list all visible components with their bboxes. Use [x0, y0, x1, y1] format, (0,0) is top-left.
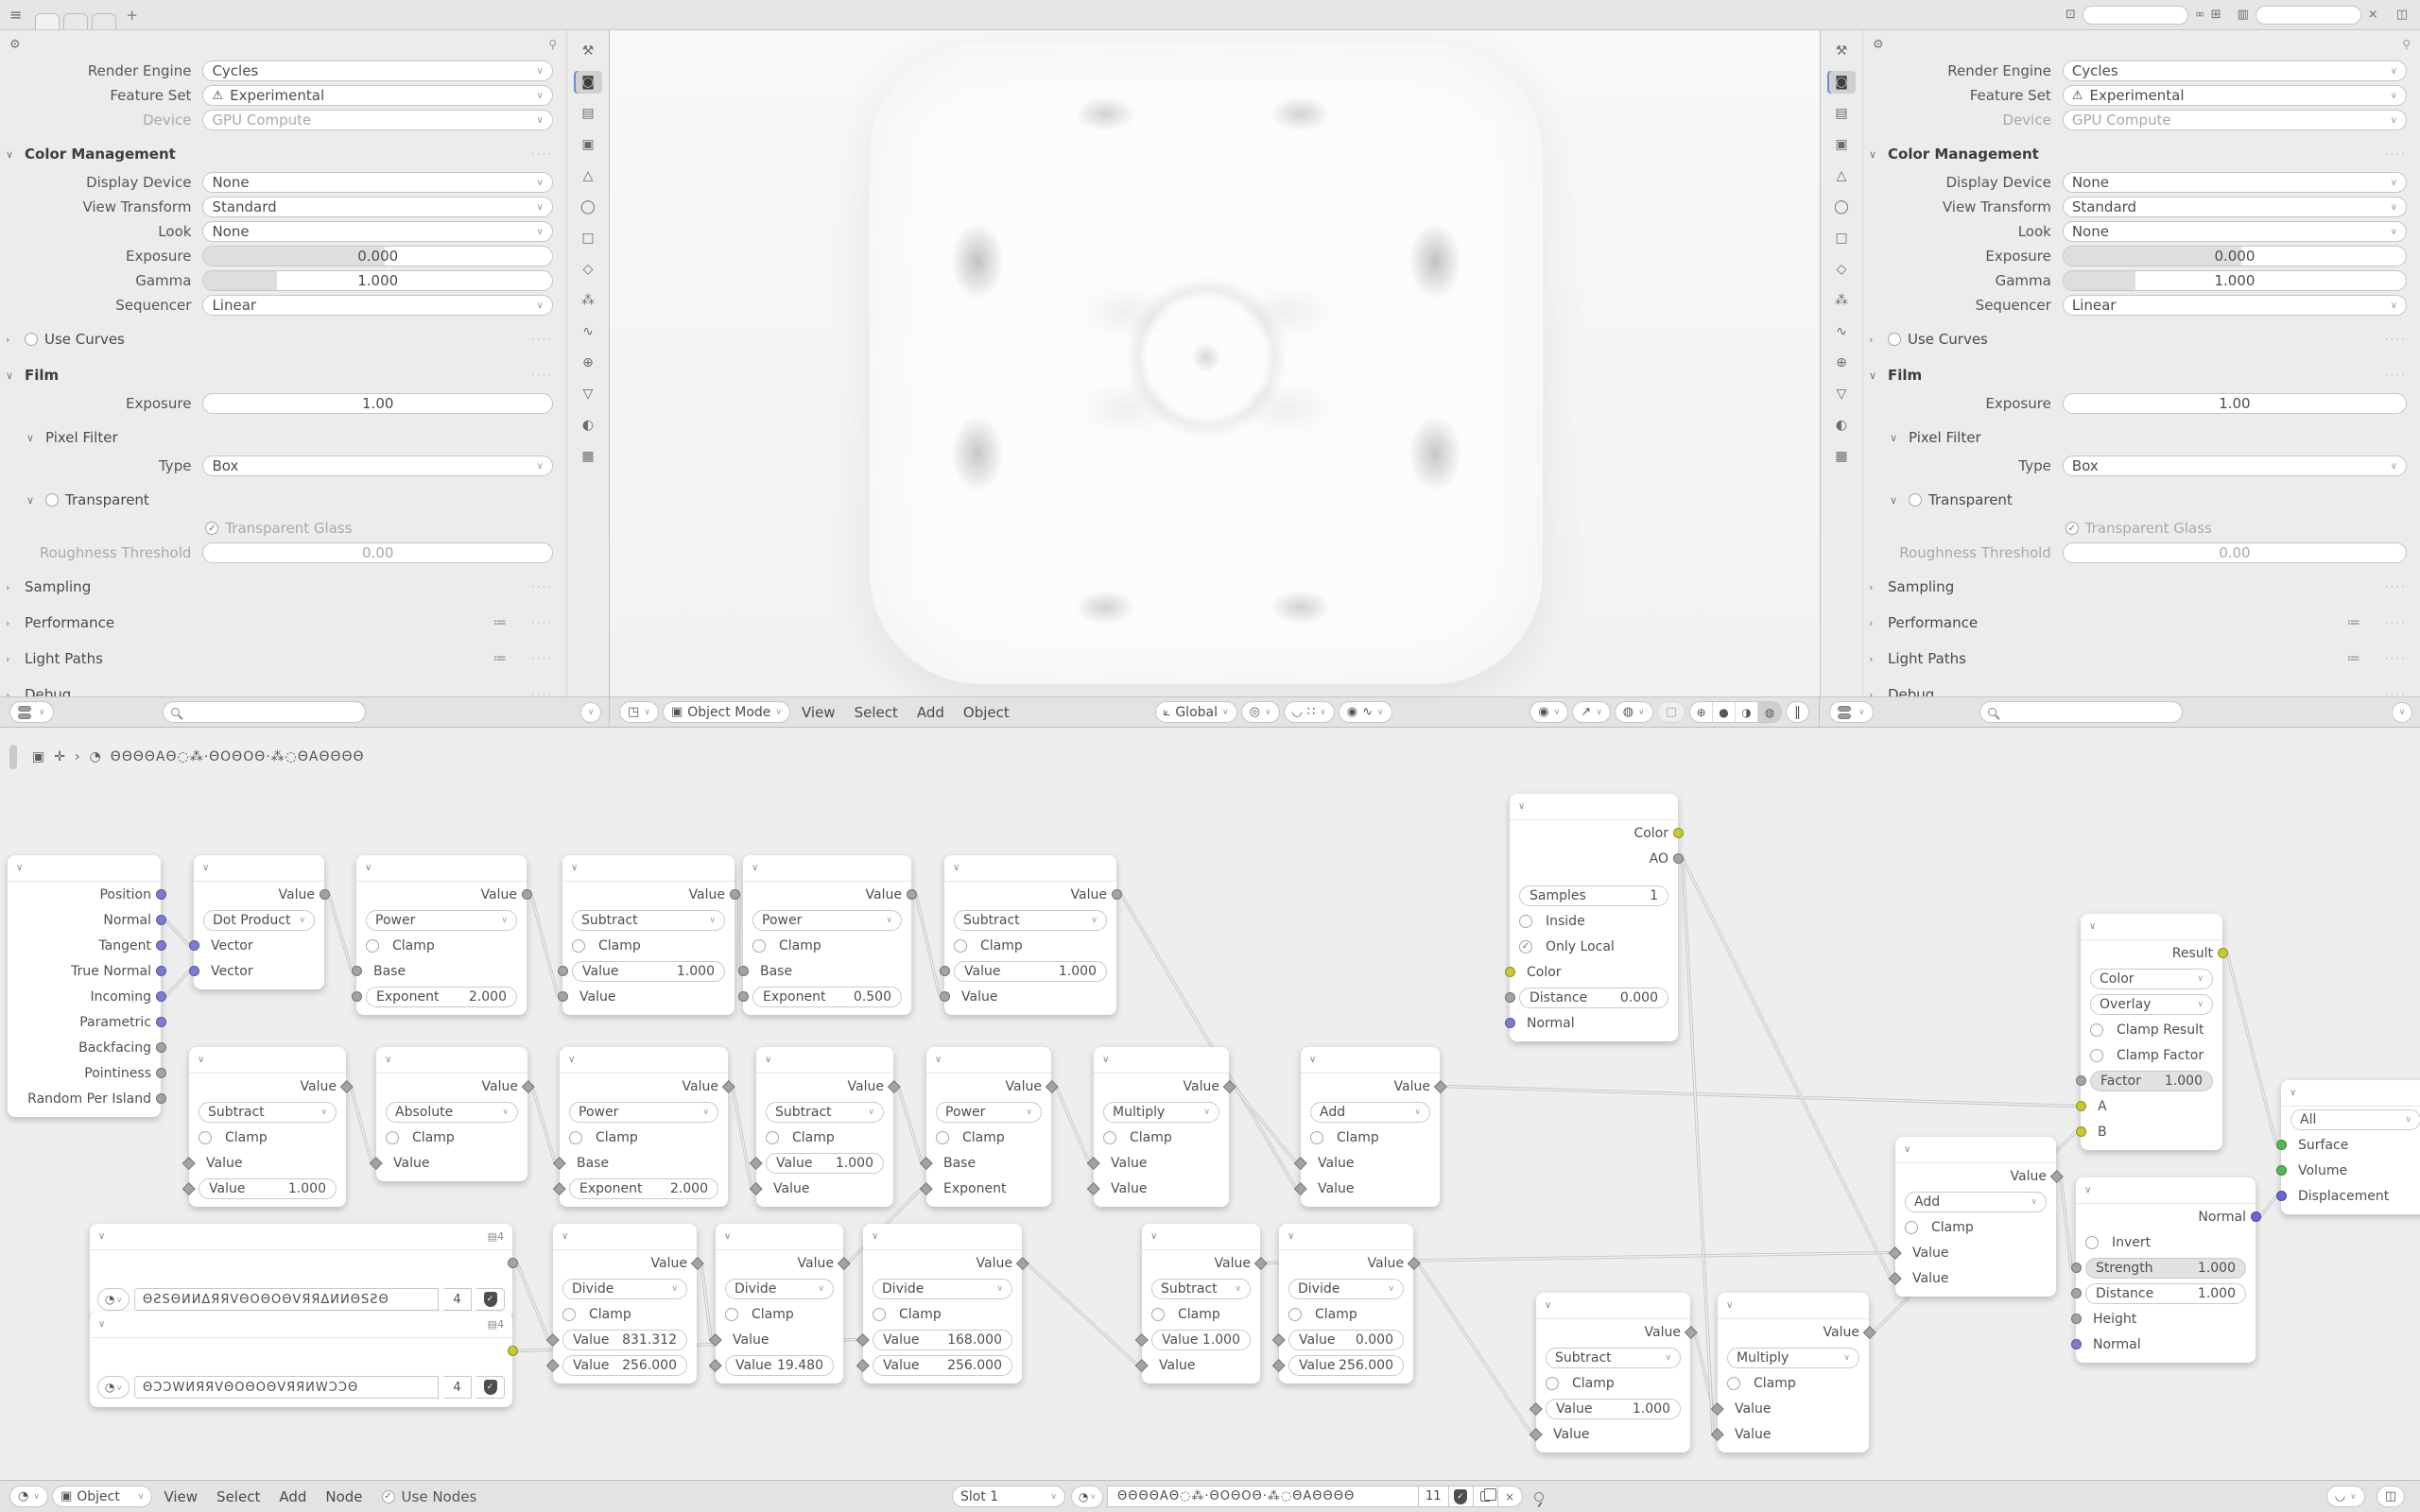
checkbox-clamp[interactable]: Clamp [725, 1307, 794, 1322]
subtract-operation-dropdown[interactable]: Subtract∨ [1546, 1348, 1681, 1368]
checkbox-clamp[interactable]: Clamp [386, 1130, 455, 1145]
fake-user-shield-button[interactable] [476, 1376, 505, 1399]
exposure-field[interactable]: 1.00 [202, 393, 553, 414]
tab-object-data[interactable]: ▽ [1827, 383, 1856, 405]
checkbox-clamp[interactable]: Clamp [1310, 1130, 1379, 1145]
checkbox-transparent-glass[interactable] [205, 522, 218, 535]
menu-view[interactable]: View [792, 704, 845, 721]
device-dropdown[interactable]: GPU Compute∨ [202, 110, 553, 130]
tab-particles[interactable]: ⁂ [1827, 289, 1856, 312]
transform-orientation-dropdown[interactable]: ⟀Global∨ [1155, 701, 1237, 723]
datablock-name-field[interactable]: ΘƆƆWИЯЯVΘOΘOΘVЯЯИWƆƆΘ [134, 1376, 439, 1399]
node-t1[interactable]: ∨▤4◔∨ΘƧSΘИИΔЯЯVΘOΘOΘVЯЯΔИИΘSƧΘ4 [90, 1224, 512, 1319]
node-header[interactable]: ∨ [560, 1047, 728, 1074]
input-socket-vector[interactable] [189, 966, 199, 976]
section-transparent[interactable]: ∨Transparent [26, 488, 553, 512]
node-header[interactable]: ∨ [716, 1224, 843, 1250]
collapse-caret-icon[interactable]: ∨ [765, 1055, 771, 1065]
collapse-caret-icon[interactable]: ∨ [2089, 921, 2096, 932]
sequencer-dropdown[interactable]: Linear∨ [202, 295, 553, 316]
node-header[interactable]: ∨ [1301, 1047, 1440, 1074]
node-m5[interactable]: ∨ValuePower∨ClampBaseExponent [926, 1047, 1051, 1207]
node-t2[interactable]: ∨▤4◔∨ΘƆƆWИЯЯVΘOΘOΘVЯЯИWƆƆΘ4 [90, 1312, 512, 1407]
section-color-management[interactable]: ∨Color Management···· [1869, 142, 2407, 166]
menu-select[interactable]: Select [207, 1488, 269, 1505]
tab-world[interactable]: ◯ [574, 196, 602, 218]
snap-controls[interactable]: ◡∷∨ [1284, 701, 1335, 723]
subtract-operation-dropdown[interactable]: Subtract∨ [199, 1102, 337, 1123]
menu-add[interactable]: Add [269, 1488, 316, 1505]
checkbox-clamp[interactable]: Clamp [1288, 1307, 1357, 1322]
section-debug[interactable]: ›Debug···· [1869, 682, 2407, 696]
shading-wireframe-button[interactable]: ⊕ [1690, 702, 1713, 722]
output-socket-value[interactable] [522, 889, 532, 900]
node-ao[interactable]: ∨ColorAOSamples1InsideOnly LocalColorDis… [1510, 794, 1678, 1041]
checkbox-clamp-result[interactable]: Clamp Result [2090, 1022, 2204, 1038]
properties-editor-icon[interactable]: ⚙ [9, 38, 21, 52]
node-header[interactable]: ∨ [1510, 794, 1678, 820]
input-socket-a[interactable] [2076, 1101, 2086, 1111]
overlays-dropdown[interactable]: ◍∨ [1615, 701, 1653, 723]
datablock-user-count[interactable]: 4 [443, 1288, 472, 1311]
xray-toggle[interactable]: ▢ [1657, 701, 1685, 723]
checkbox-clamp[interactable]: Clamp [199, 1130, 268, 1145]
tab-view-layer[interactable]: ▣ [1827, 133, 1856, 156]
exposure-slider[interactable]: 0.000 [2063, 246, 2407, 266]
value-value-field[interactable]: Value256.000 [562, 1355, 687, 1376]
node-header[interactable]: ∨ [926, 1047, 1051, 1074]
fake-user-shield-button[interactable] [476, 1288, 505, 1311]
collapse-caret-icon[interactable]: ∨ [562, 1231, 568, 1242]
input-socket-normal[interactable] [1505, 1018, 1515, 1028]
node-d1[interactable]: ∨ValueDivide∨ClampValue831.312Value256.0… [553, 1224, 697, 1383]
feature-set-dropdown[interactable]: ⚠Experimental∨ [2063, 85, 2407, 106]
distance-value-field[interactable]: Distance0.000 [1519, 988, 1668, 1008]
node-smul[interactable]: ∨ValueMultiply∨ClampValueValue [1718, 1293, 1869, 1452]
output-socket-normal[interactable] [156, 915, 166, 925]
display-device-dropdown[interactable]: None∨ [202, 172, 553, 193]
node-sub2[interactable]: ∨ValueSubtract∨ClampValue1.000Value [944, 855, 1116, 1015]
collapse-caret-icon[interactable]: ∨ [198, 1055, 204, 1065]
tab-world[interactable]: ◯ [1827, 196, 1856, 218]
value-value-field[interactable]: Value19.480 [725, 1355, 834, 1376]
checkbox-clamp[interactable]: Clamp [562, 1307, 631, 1322]
shading-solid-button[interactable]: ● [1713, 702, 1736, 722]
tab-texture[interactable]: ▦ [574, 445, 602, 468]
filter-toggle-button[interactable]: ∨ [1829, 701, 1874, 723]
exponent-value-field[interactable]: Exponent2.000 [569, 1178, 718, 1199]
add-operation-dropdown[interactable]: Add∨ [1310, 1102, 1430, 1123]
device-dropdown[interactable]: GPU Compute∨ [2063, 110, 2407, 130]
value-value-field[interactable]: Value1.000 [1151, 1330, 1251, 1350]
properties-editor-icon[interactable]: ⚙ [1873, 38, 1884, 52]
input-socket-base[interactable] [738, 966, 749, 976]
node-m3[interactable]: ∨ValuePower∨ClampBaseExponent2.000 [560, 1047, 728, 1207]
link-icon[interactable]: ∞ [2195, 8, 2205, 22]
collapse-caret-icon[interactable]: ∨ [935, 1055, 942, 1065]
checkbox-clamp[interactable]: Clamp [366, 938, 435, 954]
input-socket-color[interactable] [1505, 967, 1515, 977]
tab-texture[interactable]: ▦ [1827, 445, 1856, 468]
display-device-dropdown[interactable]: None∨ [2063, 172, 2407, 193]
checkbox-clamp[interactable]: Clamp [1727, 1376, 1796, 1391]
roughness-threshold-field[interactable]: 0.00 [2063, 542, 2407, 563]
collapse-caret-icon[interactable]: ∨ [202, 863, 209, 873]
input-socket-displacement[interactable] [2276, 1191, 2287, 1201]
input-socket-height[interactable] [2071, 1314, 2082, 1324]
node-header[interactable]: ∨ [1094, 1047, 1229, 1074]
input-socket-value[interactable] [558, 991, 568, 1002]
output-socket-value[interactable] [508, 1346, 518, 1356]
input-socket-distance[interactable] [1505, 992, 1515, 1003]
collapse-caret-icon[interactable]: ∨ [1288, 1231, 1294, 1242]
output-socket-value[interactable] [508, 1258, 518, 1268]
workspace-tab[interactable] [63, 13, 88, 29]
preset-list-icon[interactable]: ≔ [2347, 615, 2360, 630]
collapse-caret-icon[interactable]: ∨ [1904, 1144, 1910, 1155]
node-m4[interactable]: ∨ValueSubtract∨ClampValue1.000Value [756, 1047, 893, 1207]
render-engine-dropdown[interactable]: Cycles∨ [2063, 60, 2407, 81]
node-header[interactable]: ∨ [2081, 914, 2222, 940]
input-socket-exponent[interactable] [738, 991, 749, 1002]
preset-list-icon[interactable]: ≔ [493, 615, 507, 630]
tab-modifiers[interactable]: ◇ [1827, 258, 1856, 281]
multiply-operation-dropdown[interactable]: Multiply∨ [1103, 1102, 1219, 1123]
node-bump[interactable]: ∨NormalInvertStrength1.000Distance1.000H… [2076, 1177, 2256, 1363]
multiply-operation-dropdown[interactable]: Multiply∨ [1727, 1348, 1859, 1368]
section-use-curves[interactable]: ›Use Curves···· [6, 327, 553, 352]
input-socket-value[interactable] [940, 966, 950, 976]
subtract-operation-dropdown[interactable]: Subtract∨ [1151, 1279, 1251, 1299]
tab-tool[interactable]: ⚒ [1827, 40, 1856, 62]
pivot-point-dropdown[interactable]: ◎∨ [1241, 701, 1280, 723]
collapse-caret-icon[interactable]: ∨ [385, 1055, 391, 1065]
divide-operation-dropdown[interactable]: Divide∨ [562, 1279, 687, 1299]
feature-set-dropdown[interactable]: ⚠Experimental∨ [202, 85, 553, 106]
scrollbar[interactable] [9, 745, 17, 769]
collapse-caret-icon[interactable]: ∨ [1726, 1300, 1733, 1311]
input-socket-surface[interactable] [2276, 1140, 2287, 1150]
node-m6[interactable]: ∨ValueMultiply∨ClampValueValue [1094, 1047, 1229, 1207]
add-operation-dropdown[interactable]: Add∨ [1905, 1192, 2047, 1212]
node-m2[interactable]: ∨ValueAbsolute∨ClampValue [376, 1047, 527, 1181]
exposure-field[interactable]: 1.00 [2063, 393, 2407, 414]
tab-material[interactable]: ◐ [1827, 414, 1856, 437]
node-header[interactable]: ∨ [756, 1047, 893, 1074]
node-mix[interactable]: ∨ResultColor∨Overlay∨Clamp ResultClamp F… [2081, 914, 2222, 1150]
use-nodes-checkbox[interactable] [382, 1490, 395, 1503]
menu-view[interactable]: View [154, 1488, 207, 1505]
checkbox-only-local[interactable]: Only Local [1519, 939, 1615, 954]
collapse-caret-icon[interactable]: ∨ [752, 863, 758, 873]
datablock-name-field[interactable]: ΘƧSΘИИΔЯЯVΘOΘOΘVЯЯΔИИΘSƧΘ [134, 1288, 439, 1311]
checkbox-transparent[interactable] [45, 493, 59, 507]
node-header[interactable]: ∨ [2281, 1080, 2420, 1107]
node-header[interactable]: ∨ [863, 1224, 1022, 1250]
collapse-caret-icon[interactable]: ∨ [1518, 801, 1525, 812]
tab-object[interactable]: □ [574, 227, 602, 249]
divide-operation-dropdown[interactable]: Divide∨ [1288, 1279, 1404, 1299]
tab-view-layer[interactable]: ▣ [574, 133, 602, 156]
view-transform-dropdown[interactable]: Standard∨ [202, 197, 553, 217]
tab-constraints[interactable]: ⊕ [1827, 352, 1856, 374]
distance-value-field[interactable]: Distance1.000 [2085, 1283, 2246, 1304]
input-socket-vector[interactable] [189, 940, 199, 951]
checkbox-inside[interactable]: Inside [1519, 914, 1585, 929]
node-d3[interactable]: ∨ValueDivide∨ClampValue168.000Value256.0… [863, 1224, 1022, 1383]
tab-tool[interactable]: ⚒ [574, 40, 602, 62]
checkbox-clamp-factor[interactable]: Clamp Factor [2090, 1048, 2204, 1063]
collapse-caret-icon[interactable]: ∨ [1309, 1055, 1316, 1065]
samples-value-field[interactable]: Samples1 [1519, 885, 1668, 906]
node-header[interactable]: ∨ [562, 855, 735, 882]
node-header[interactable]: ∨ [743, 855, 911, 882]
input-socket-value[interactable] [558, 966, 568, 976]
node-header[interactable]: ∨ [1718, 1293, 1869, 1319]
material-user-count[interactable]: 11 [1419, 1486, 1449, 1507]
node-sub1[interactable]: ∨ValueSubtract∨ClampValue1.000Value [562, 855, 735, 1015]
remove-view-layer-icon[interactable]: × [2368, 8, 2378, 22]
output-socket-tangent[interactable] [156, 940, 166, 951]
tab-render[interactable]: ◙ [1827, 71, 1856, 94]
node-header[interactable]: ∨ [376, 1047, 527, 1074]
collapse-caret-icon[interactable]: ∨ [2290, 1088, 2296, 1098]
exposure-slider[interactable]: 0.000 [202, 246, 553, 266]
input-socket-base[interactable] [352, 966, 362, 976]
collapse-caret-icon[interactable]: ∨ [16, 863, 23, 873]
gamma-slider[interactable]: 1.000 [202, 270, 553, 291]
look-dropdown[interactable]: None∨ [2063, 221, 2407, 242]
overlay-operation-dropdown[interactable]: Overlay∨ [2090, 994, 2213, 1015]
checkbox-clamp[interactable]: Clamp [936, 1130, 1005, 1145]
options-dropdown[interactable]: ∨ [2392, 702, 2412, 723]
value-value-field[interactable]: Value256.000 [1288, 1355, 1404, 1376]
gizmos-dropdown[interactable]: ↗∨ [1572, 701, 1611, 723]
factor-value-field[interactable]: Factor1.000 [2090, 1071, 2213, 1091]
editor-type-button[interactable]: ◳∨ [619, 701, 659, 723]
render-display-icon[interactable]: ◫ [2396, 8, 2408, 22]
output-socket-backfacing[interactable] [156, 1042, 166, 1053]
divide-operation-dropdown[interactable]: Divide∨ [873, 1279, 1012, 1299]
output-socket-random-per-island[interactable] [156, 1093, 166, 1104]
checkbox-clamp[interactable]: Clamp [954, 938, 1023, 954]
sequencer-dropdown[interactable]: Linear∨ [2063, 295, 2407, 316]
checkbox-clamp[interactable]: Clamp [572, 938, 641, 954]
section-performance[interactable]: ›Performance≔···· [6, 610, 553, 635]
section-pixel-filter[interactable]: ∨Pixel Filter [1890, 425, 2407, 450]
node-pow2[interactable]: ∨ValuePower∨ClampBaseExponent0.500 [743, 855, 911, 1015]
collapse-caret-icon[interactable]: ∨ [2084, 1185, 2091, 1195]
value-value-field[interactable]: Value1.000 [766, 1153, 884, 1174]
mode-dropdown[interactable]: ▣Object Mode∨ [663, 701, 790, 723]
input-socket-exponent[interactable] [352, 991, 362, 1002]
tab-material[interactable]: ◐ [574, 414, 602, 437]
tab-object[interactable]: □ [1827, 227, 1856, 249]
tab-constraints[interactable]: ⊕ [574, 352, 602, 374]
checkbox-clamp[interactable]: Clamp [873, 1307, 942, 1322]
node-m7[interactable]: ∨ValueAdd∨ClampValueValue [1301, 1047, 1440, 1207]
collapse-caret-icon[interactable]: ∨ [1102, 1055, 1109, 1065]
node-header[interactable]: ∨ [356, 855, 527, 882]
fake-user-shield-button[interactable] [1449, 1486, 1474, 1507]
checkbox-transparent[interactable] [1909, 493, 1922, 507]
visibility-dropdown[interactable]: ◉∨ [1530, 701, 1568, 723]
power-operation-dropdown[interactable]: Power∨ [936, 1102, 1042, 1123]
workspace-tab[interactable] [92, 13, 116, 29]
output-socket-value[interactable] [1112, 889, 1122, 900]
value-value-field[interactable]: Value168.000 [873, 1330, 1012, 1350]
collapse-caret-icon[interactable]: ∨ [98, 1231, 105, 1242]
viewport-3d[interactable] [610, 30, 1820, 696]
output-socket-true-normal[interactable] [156, 966, 166, 976]
checkbox-clamp[interactable]: Clamp [766, 1130, 835, 1145]
exponent-value-field[interactable]: Exponent2.000 [366, 987, 517, 1007]
material-browse-dropdown[interactable]: ◔∨ [1071, 1486, 1103, 1508]
node-header[interactable]: ∨ [8, 855, 161, 882]
output-socket-position[interactable] [156, 889, 166, 900]
material-name-field[interactable]: ΘΘΘΘAΘ◌⁂·ΘOΘOΘ·⁂◌ΘAΘΘΘΘ [1107, 1486, 1419, 1507]
section-sampling[interactable]: ›Sampling···· [1869, 575, 2407, 599]
output-socket-incoming[interactable] [156, 991, 166, 1002]
pin-icon[interactable]: ⚲ [548, 38, 557, 51]
menu-node[interactable]: Node [316, 1488, 372, 1505]
copy-material-button[interactable] [1474, 1486, 1498, 1507]
node-header[interactable]: ∨▤4 [90, 1224, 512, 1250]
node-header[interactable]: ∨ [1536, 1293, 1690, 1319]
subtract-operation-dropdown[interactable]: Subtract∨ [766, 1102, 884, 1123]
input-socket-normal[interactable] [2071, 1339, 2082, 1349]
section-light-paths[interactable]: ›Light Paths≔···· [6, 646, 553, 671]
node-header[interactable]: ∨ [1142, 1224, 1260, 1250]
node-dot[interactable]: ∨ValueDot Product∨VectorVector [194, 855, 324, 989]
shading-material-button[interactable]: ◑ [1736, 702, 1758, 722]
render-engine-dropdown[interactable]: Cycles∨ [202, 60, 553, 81]
power-operation-dropdown[interactable]: Power∨ [752, 910, 902, 931]
editor-type-button[interactable]: ◔∨ [9, 1486, 48, 1507]
node-ssub[interactable]: ∨ValueSubtract∨ClampValue1.000Value [1536, 1293, 1690, 1452]
checkbox-clamp[interactable]: Clamp [1103, 1130, 1172, 1145]
node-header[interactable]: ∨ [944, 855, 1116, 882]
workspace-tab[interactable] [35, 13, 60, 29]
unlink-material-button[interactable]: × [1498, 1486, 1523, 1507]
node-m1[interactable]: ∨ValueSubtract∨ClampValueValue1.000 [189, 1047, 346, 1207]
value-value-field[interactable]: Value1.000 [572, 961, 725, 982]
look-dropdown[interactable]: None∨ [202, 221, 553, 242]
node-header[interactable]: ∨ [2076, 1177, 2256, 1204]
section-performance[interactable]: ›Performance≔···· [1869, 610, 2407, 635]
output-socket-normal[interactable] [2251, 1211, 2261, 1222]
input-socket-volume[interactable] [2276, 1165, 2287, 1176]
section-use-curves[interactable]: ›Use Curves···· [1869, 327, 2407, 352]
node-header[interactable]: ∨ [1895, 1137, 2056, 1163]
snap-controls[interactable]: ◡∨ [2326, 1486, 2365, 1507]
all-operation-dropdown[interactable]: All∨ [2290, 1109, 2420, 1130]
app-menu-icon[interactable]: ≡ [9, 6, 22, 24]
input-socket-value[interactable] [940, 991, 950, 1002]
shader-type-dropdown[interactable]: ▣Object∨ [52, 1486, 153, 1507]
checkbox-clamp[interactable]: Clamp [1151, 1307, 1220, 1322]
collapse-caret-icon[interactable]: ∨ [98, 1319, 105, 1330]
pin-icon[interactable]: ⚲ [2402, 38, 2411, 51]
dot-product-operation-dropdown[interactable]: Dot Product∨ [203, 910, 315, 931]
section-pixel-filter[interactable]: ∨Pixel Filter [26, 425, 553, 450]
power-operation-dropdown[interactable]: Power∨ [366, 910, 517, 931]
datablock-user-count[interactable]: 4 [443, 1376, 472, 1399]
output-socket-color[interactable] [1673, 828, 1684, 838]
collapse-caret-icon[interactable]: ∨ [568, 1055, 575, 1065]
value-value-field[interactable]: Value1.000 [954, 961, 1107, 982]
collapse-caret-icon[interactable]: ∨ [365, 863, 372, 873]
material-slot-dropdown[interactable]: Slot 1∨ [952, 1486, 1065, 1507]
node-header[interactable]: ∨▤4 [90, 1312, 512, 1338]
view-transform-dropdown[interactable]: Standard∨ [2063, 197, 2407, 217]
section-transparent[interactable]: ∨Transparent [1890, 488, 2407, 512]
tab-physics[interactable]: ∿ [1827, 320, 1856, 343]
output-socket-pointiness[interactable] [156, 1068, 166, 1078]
proportional-edit-controls[interactable]: ◉∿∨ [1339, 701, 1392, 723]
search-input[interactable] [1979, 701, 2183, 723]
node-d2[interactable]: ∨ValueDivide∨ClampValueValue19.480 [716, 1224, 843, 1383]
section-film[interactable]: ∨Film···· [6, 363, 553, 387]
color-operation-dropdown[interactable]: Color∨ [2090, 969, 2213, 989]
datablock-browse-dropdown[interactable]: ◔∨ [97, 1288, 130, 1311]
input-socket-distance[interactable] [2071, 1288, 2082, 1298]
datablock-browse-dropdown[interactable]: ◔∨ [97, 1376, 130, 1399]
value-value-field[interactable]: Value0.000 [1288, 1330, 1404, 1350]
subtract-operation-dropdown[interactable]: Subtract∨ [572, 910, 725, 931]
gamma-slider[interactable]: 1.000 [2063, 270, 2407, 291]
collapse-caret-icon[interactable]: ∨ [872, 1231, 878, 1242]
node-header[interactable]: ∨ [194, 855, 324, 882]
node-outn[interactable]: ∨All∨SurfaceVolumeDisplacement [2281, 1080, 2420, 1214]
node-pow1[interactable]: ∨ValuePower∨ClampBaseExponent2.000 [356, 855, 527, 1015]
menu-add[interactable]: Add [907, 704, 954, 721]
checkbox-invert[interactable]: Invert [2085, 1235, 2151, 1250]
strength-value-field[interactable]: Strength1.000 [2085, 1258, 2246, 1279]
type-dropdown[interactable]: Box∨ [2063, 455, 2407, 476]
divide-operation-dropdown[interactable]: Divide∨ [725, 1279, 834, 1299]
exponent-value-field[interactable]: Exponent0.500 [752, 987, 902, 1007]
checkbox-clamp[interactable]: Clamp [1546, 1376, 1615, 1391]
pin-icon[interactable] [1534, 1492, 1544, 1502]
checkbox-clamp[interactable]: Clamp [752, 938, 821, 954]
value-value-field[interactable]: Value256.000 [873, 1355, 1012, 1376]
options-dropdown[interactable]: ∨ [580, 702, 601, 723]
node-d4[interactable]: ∨ValueSubtract∨ClampValue1.000Value [1142, 1224, 1260, 1383]
checkbox-use-curves[interactable] [25, 333, 38, 346]
checkbox-transparent-glass[interactable] [2066, 522, 2079, 535]
section-film[interactable]: ∨Film···· [1869, 363, 2407, 387]
roughness-threshold-field[interactable]: 0.00 [202, 542, 553, 563]
add-workspace-button[interactable]: + [126, 7, 138, 24]
tab-physics[interactable]: ∿ [574, 320, 602, 343]
section-debug[interactable]: ›Debug···· [6, 682, 553, 696]
collapse-caret-icon[interactable]: ∨ [1150, 1231, 1157, 1242]
menu-object[interactable]: Object [954, 704, 1019, 721]
node-header[interactable]: ∨ [553, 1224, 697, 1250]
output-socket-value[interactable] [730, 889, 740, 900]
output-socket-result[interactable] [2218, 948, 2228, 958]
menu-select[interactable]: Select [845, 704, 907, 721]
checkbox-use-curves[interactable] [1888, 333, 1901, 346]
tab-output[interactable]: ▤ [1827, 102, 1856, 125]
value-value-field[interactable]: Value1.000 [1546, 1399, 1681, 1419]
tab-render[interactable]: ◙ [574, 71, 602, 94]
section-color-management[interactable]: ∨Color Management···· [6, 142, 553, 166]
output-socket-value[interactable] [320, 889, 330, 900]
input-socket-factor[interactable] [2076, 1075, 2086, 1086]
collapse-caret-icon[interactable]: ∨ [953, 863, 959, 873]
